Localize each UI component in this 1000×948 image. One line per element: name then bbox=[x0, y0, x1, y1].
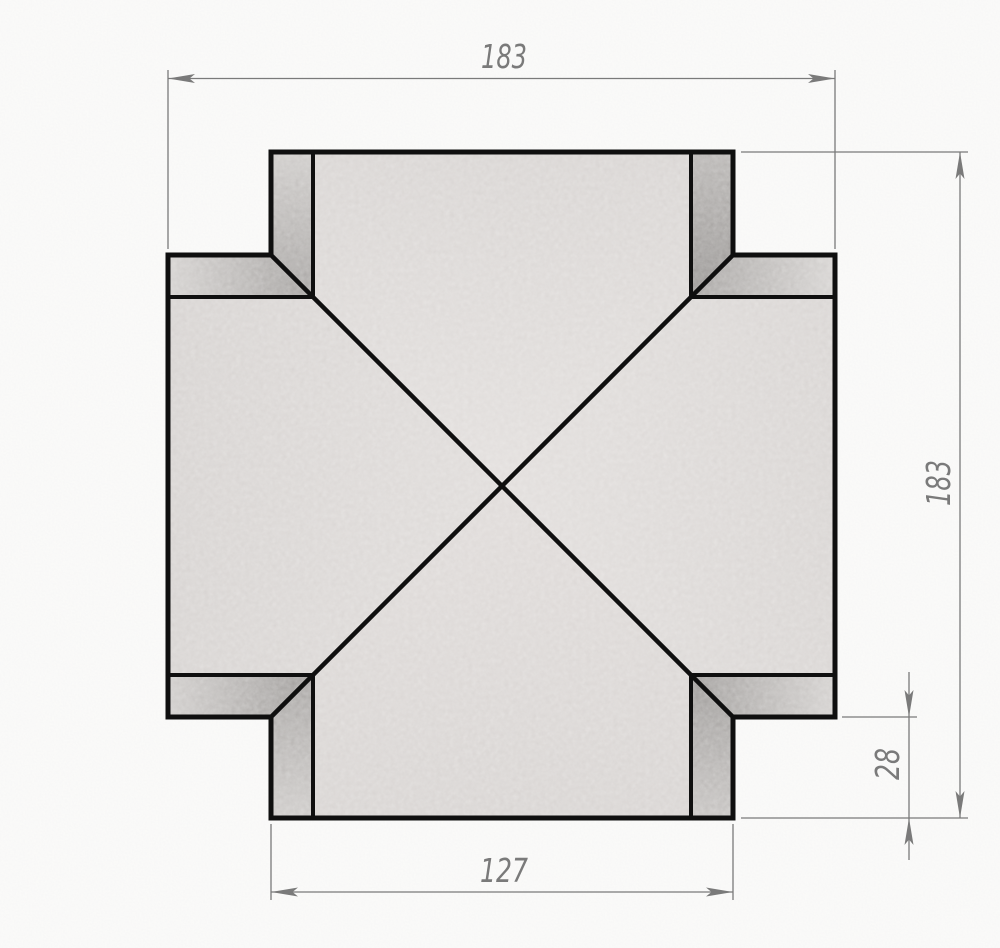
cross-fitting-technical-drawing: 183 183 127 28 bbox=[0, 0, 1000, 948]
drawing-canvas: 183 183 127 28 bbox=[0, 0, 1000, 948]
dimension-label-arm-protrusion: 28 bbox=[868, 748, 907, 780]
dimension-label-port-width: 127 bbox=[480, 851, 528, 890]
dimension-label-overall-width: 183 bbox=[481, 37, 527, 76]
dimension-label-overall-height: 183 bbox=[919, 460, 958, 506]
